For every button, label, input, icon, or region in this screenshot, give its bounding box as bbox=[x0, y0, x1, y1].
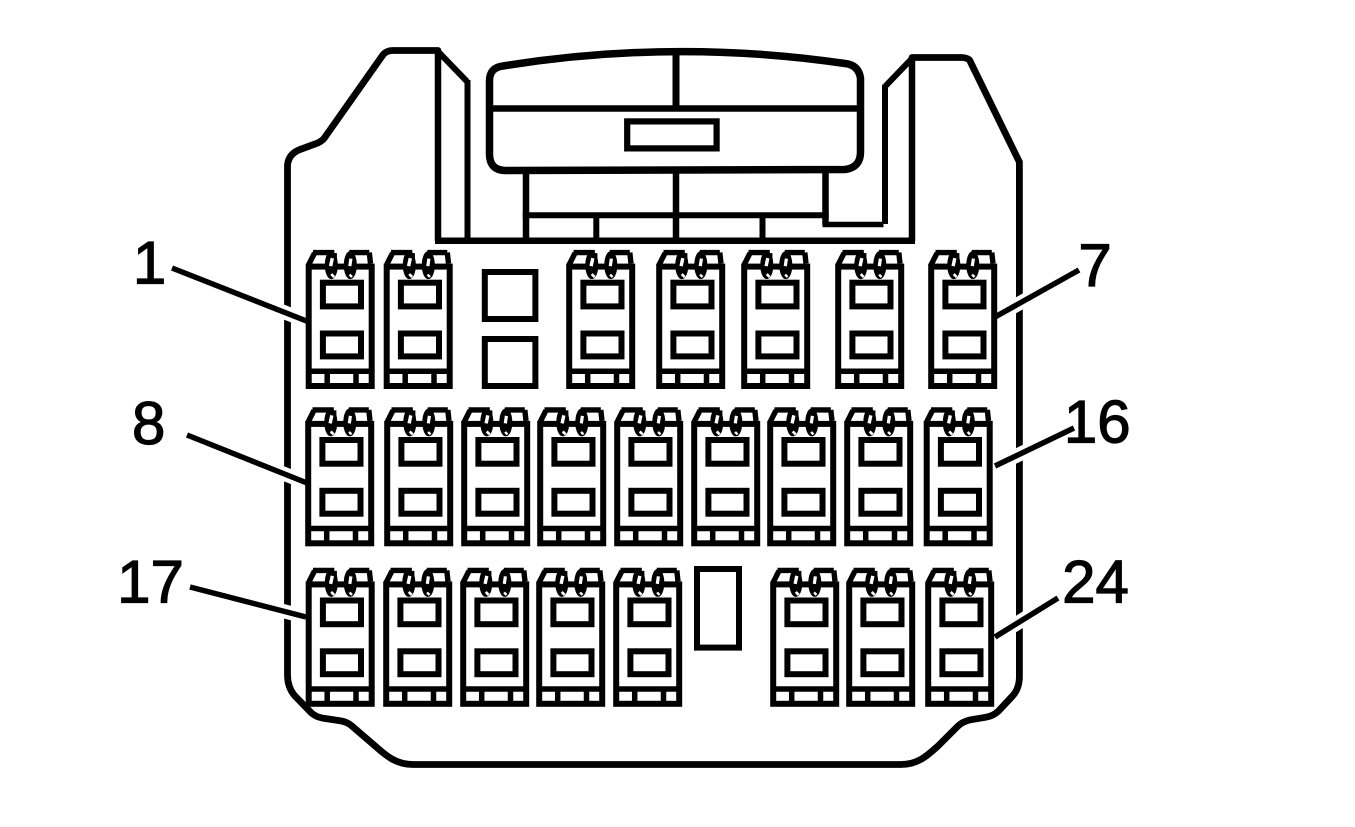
svg-text:24: 24 bbox=[1062, 549, 1129, 616]
svg-text:16: 16 bbox=[1064, 389, 1131, 456]
svg-text:17: 17 bbox=[117, 549, 184, 616]
svg-text:8: 8 bbox=[132, 390, 165, 457]
svg-text:1: 1 bbox=[133, 230, 166, 297]
svg-text:7: 7 bbox=[1078, 232, 1111, 299]
